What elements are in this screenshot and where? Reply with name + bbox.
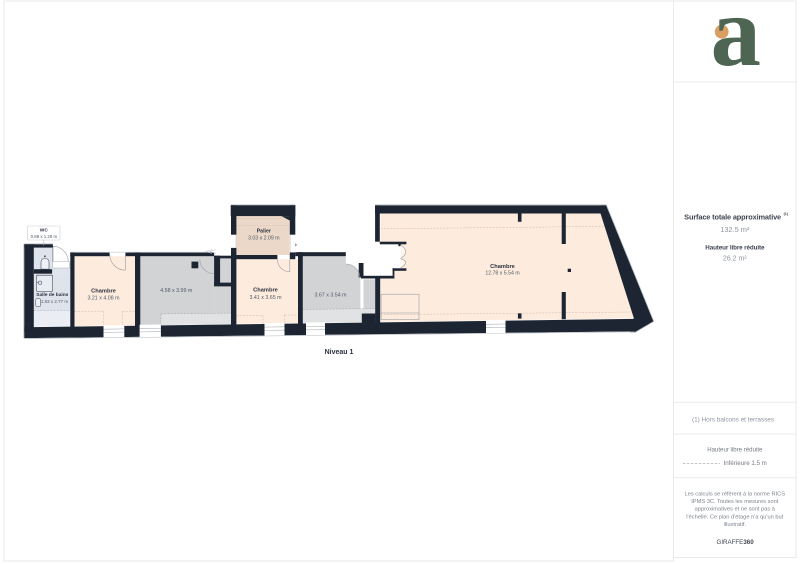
svg-text:Chambre: Chambre bbox=[253, 288, 278, 294]
svg-text:132.5 m²: 132.5 m² bbox=[720, 225, 750, 234]
svg-text:WC: WC bbox=[40, 227, 49, 233]
svg-text:4.58 x 3.99 m: 4.58 x 3.99 m bbox=[160, 288, 193, 294]
svg-text:l'échelle. Ce plan d'étage n'a: l'échelle. Ce plan d'étage n'a qu'un but bbox=[686, 514, 783, 520]
svg-text:a: a bbox=[710, 0, 761, 87]
svg-text:0.88 x 1.28 m: 0.88 x 1.28 m bbox=[31, 234, 58, 239]
svg-text:Hauteur libre réduite: Hauteur libre réduite bbox=[705, 245, 765, 252]
svg-text:approximatives et ne sont pas: approximatives et ne sont pas à bbox=[695, 507, 776, 513]
svg-text:Les calculs se réfèrent à la n: Les calculs se réfèrent à la norme RICS bbox=[685, 491, 786, 497]
svg-text:Palier: Palier bbox=[257, 229, 271, 235]
svg-text:(1) Hors balcons et terrasses: (1) Hors balcons et terrasses bbox=[692, 416, 774, 423]
svg-text:IPMS 3C. Toutes les mesures so: IPMS 3C. Toutes les mesures sont bbox=[691, 499, 779, 505]
svg-text:12.78 x 5.54 m: 12.78 x 5.54 m bbox=[485, 271, 519, 277]
svg-text:Chambre: Chambre bbox=[490, 264, 515, 270]
svg-text:Surface totale approximative: Surface totale approximative bbox=[684, 213, 781, 222]
svg-text:Chambre: Chambre bbox=[91, 288, 116, 294]
svg-text:26.2 m²: 26.2 m² bbox=[723, 256, 747, 263]
svg-text:Inférieure 1.5 m: Inférieure 1.5 m bbox=[724, 460, 767, 467]
svg-text:3.67 x 3.54 m: 3.67 x 3.54 m bbox=[314, 292, 347, 298]
svg-text:Niveau 1: Niveau 1 bbox=[325, 349, 354, 356]
svg-text:1.93 x 2.77 m: 1.93 x 2.77 m bbox=[41, 299, 69, 304]
svg-text:3.21 x 4.08 m: 3.21 x 4.08 m bbox=[87, 296, 120, 302]
svg-text:GIRAFFE360: GIRAFFE360 bbox=[717, 539, 755, 546]
svg-text:(1): (1) bbox=[784, 212, 789, 216]
svg-text:illustratif.: illustratif. bbox=[724, 522, 747, 528]
svg-text:Salle de bains: Salle de bains bbox=[36, 292, 68, 298]
svg-text:3.03 x 2.09 m: 3.03 x 2.09 m bbox=[248, 236, 279, 242]
svg-text:3.41 x 3.65 m: 3.41 x 3.65 m bbox=[249, 295, 282, 301]
svg-text:Hauteur libre réduite: Hauteur libre réduite bbox=[707, 447, 763, 454]
